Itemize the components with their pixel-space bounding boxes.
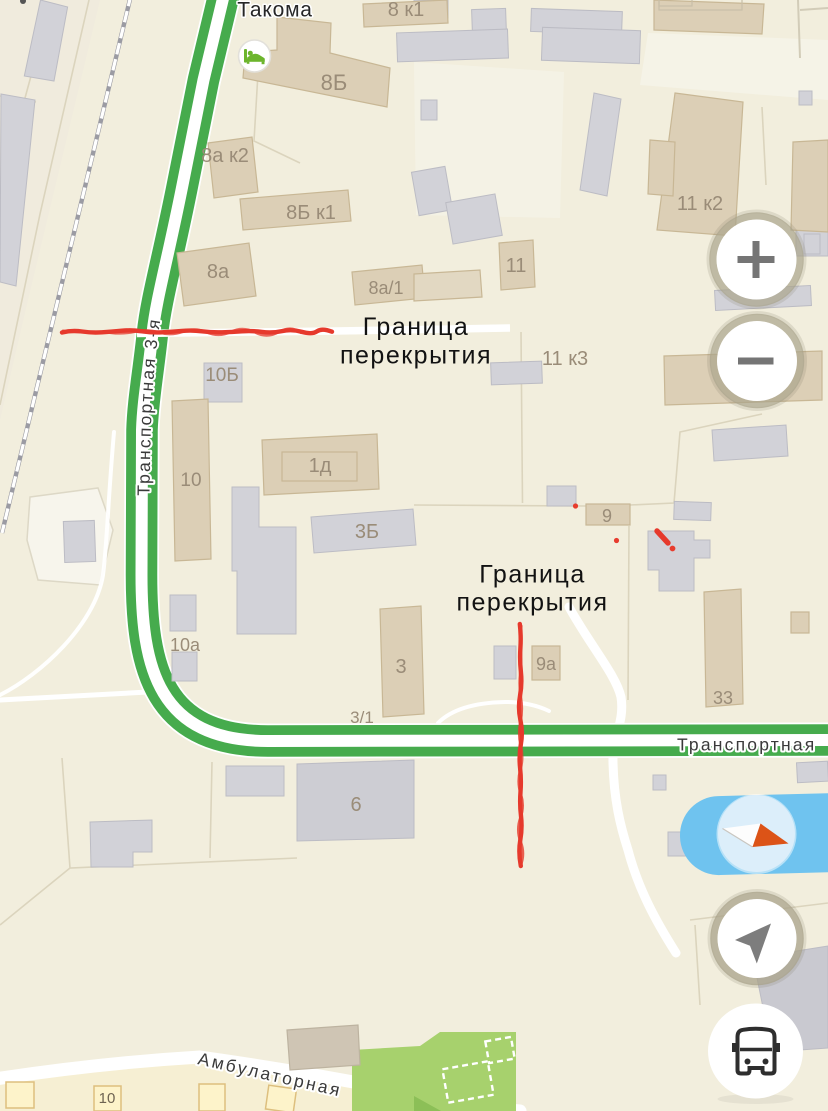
- svg-text:9а: 9а: [536, 654, 557, 674]
- svg-text:10: 10: [180, 470, 201, 491]
- svg-text:8а: 8а: [207, 261, 230, 283]
- svg-text:11 к2: 11 к2: [677, 193, 723, 215]
- svg-text:9: 9: [602, 506, 612, 526]
- svg-text:10: 10: [99, 1090, 116, 1107]
- svg-text:Транспортная: Транспортная: [677, 735, 816, 755]
- svg-text:3Б: 3Б: [355, 521, 379, 543]
- svg-text:8а/1: 8а/1: [368, 278, 403, 298]
- svg-text:10Б: 10Б: [205, 365, 239, 386]
- svg-text:3: 3: [395, 656, 406, 678]
- svg-text:11: 11: [506, 255, 527, 277]
- svg-text:Такома: Такома: [237, 0, 313, 22]
- svg-text:11 к3: 11 к3: [542, 348, 588, 370]
- svg-text:перекрытия: перекрытия: [456, 589, 608, 617]
- svg-text:Граница: Граница: [363, 313, 469, 341]
- svg-text:8 к1: 8 к1: [388, 0, 425, 21]
- svg-text:8а к2: 8а к2: [201, 145, 249, 167]
- svg-text:10а: 10а: [170, 635, 201, 655]
- svg-text:6: 6: [350, 794, 361, 816]
- svg-text:33: 33: [713, 688, 733, 708]
- svg-text:Граница: Граница: [479, 561, 585, 589]
- svg-text:перекрытия: перекрытия: [340, 342, 492, 370]
- svg-text:3/1: 3/1: [350, 708, 374, 727]
- svg-text:8Б: 8Б: [321, 70, 348, 95]
- svg-text:1д: 1д: [309, 455, 332, 477]
- svg-text:8Б к1: 8Б к1: [286, 202, 336, 224]
